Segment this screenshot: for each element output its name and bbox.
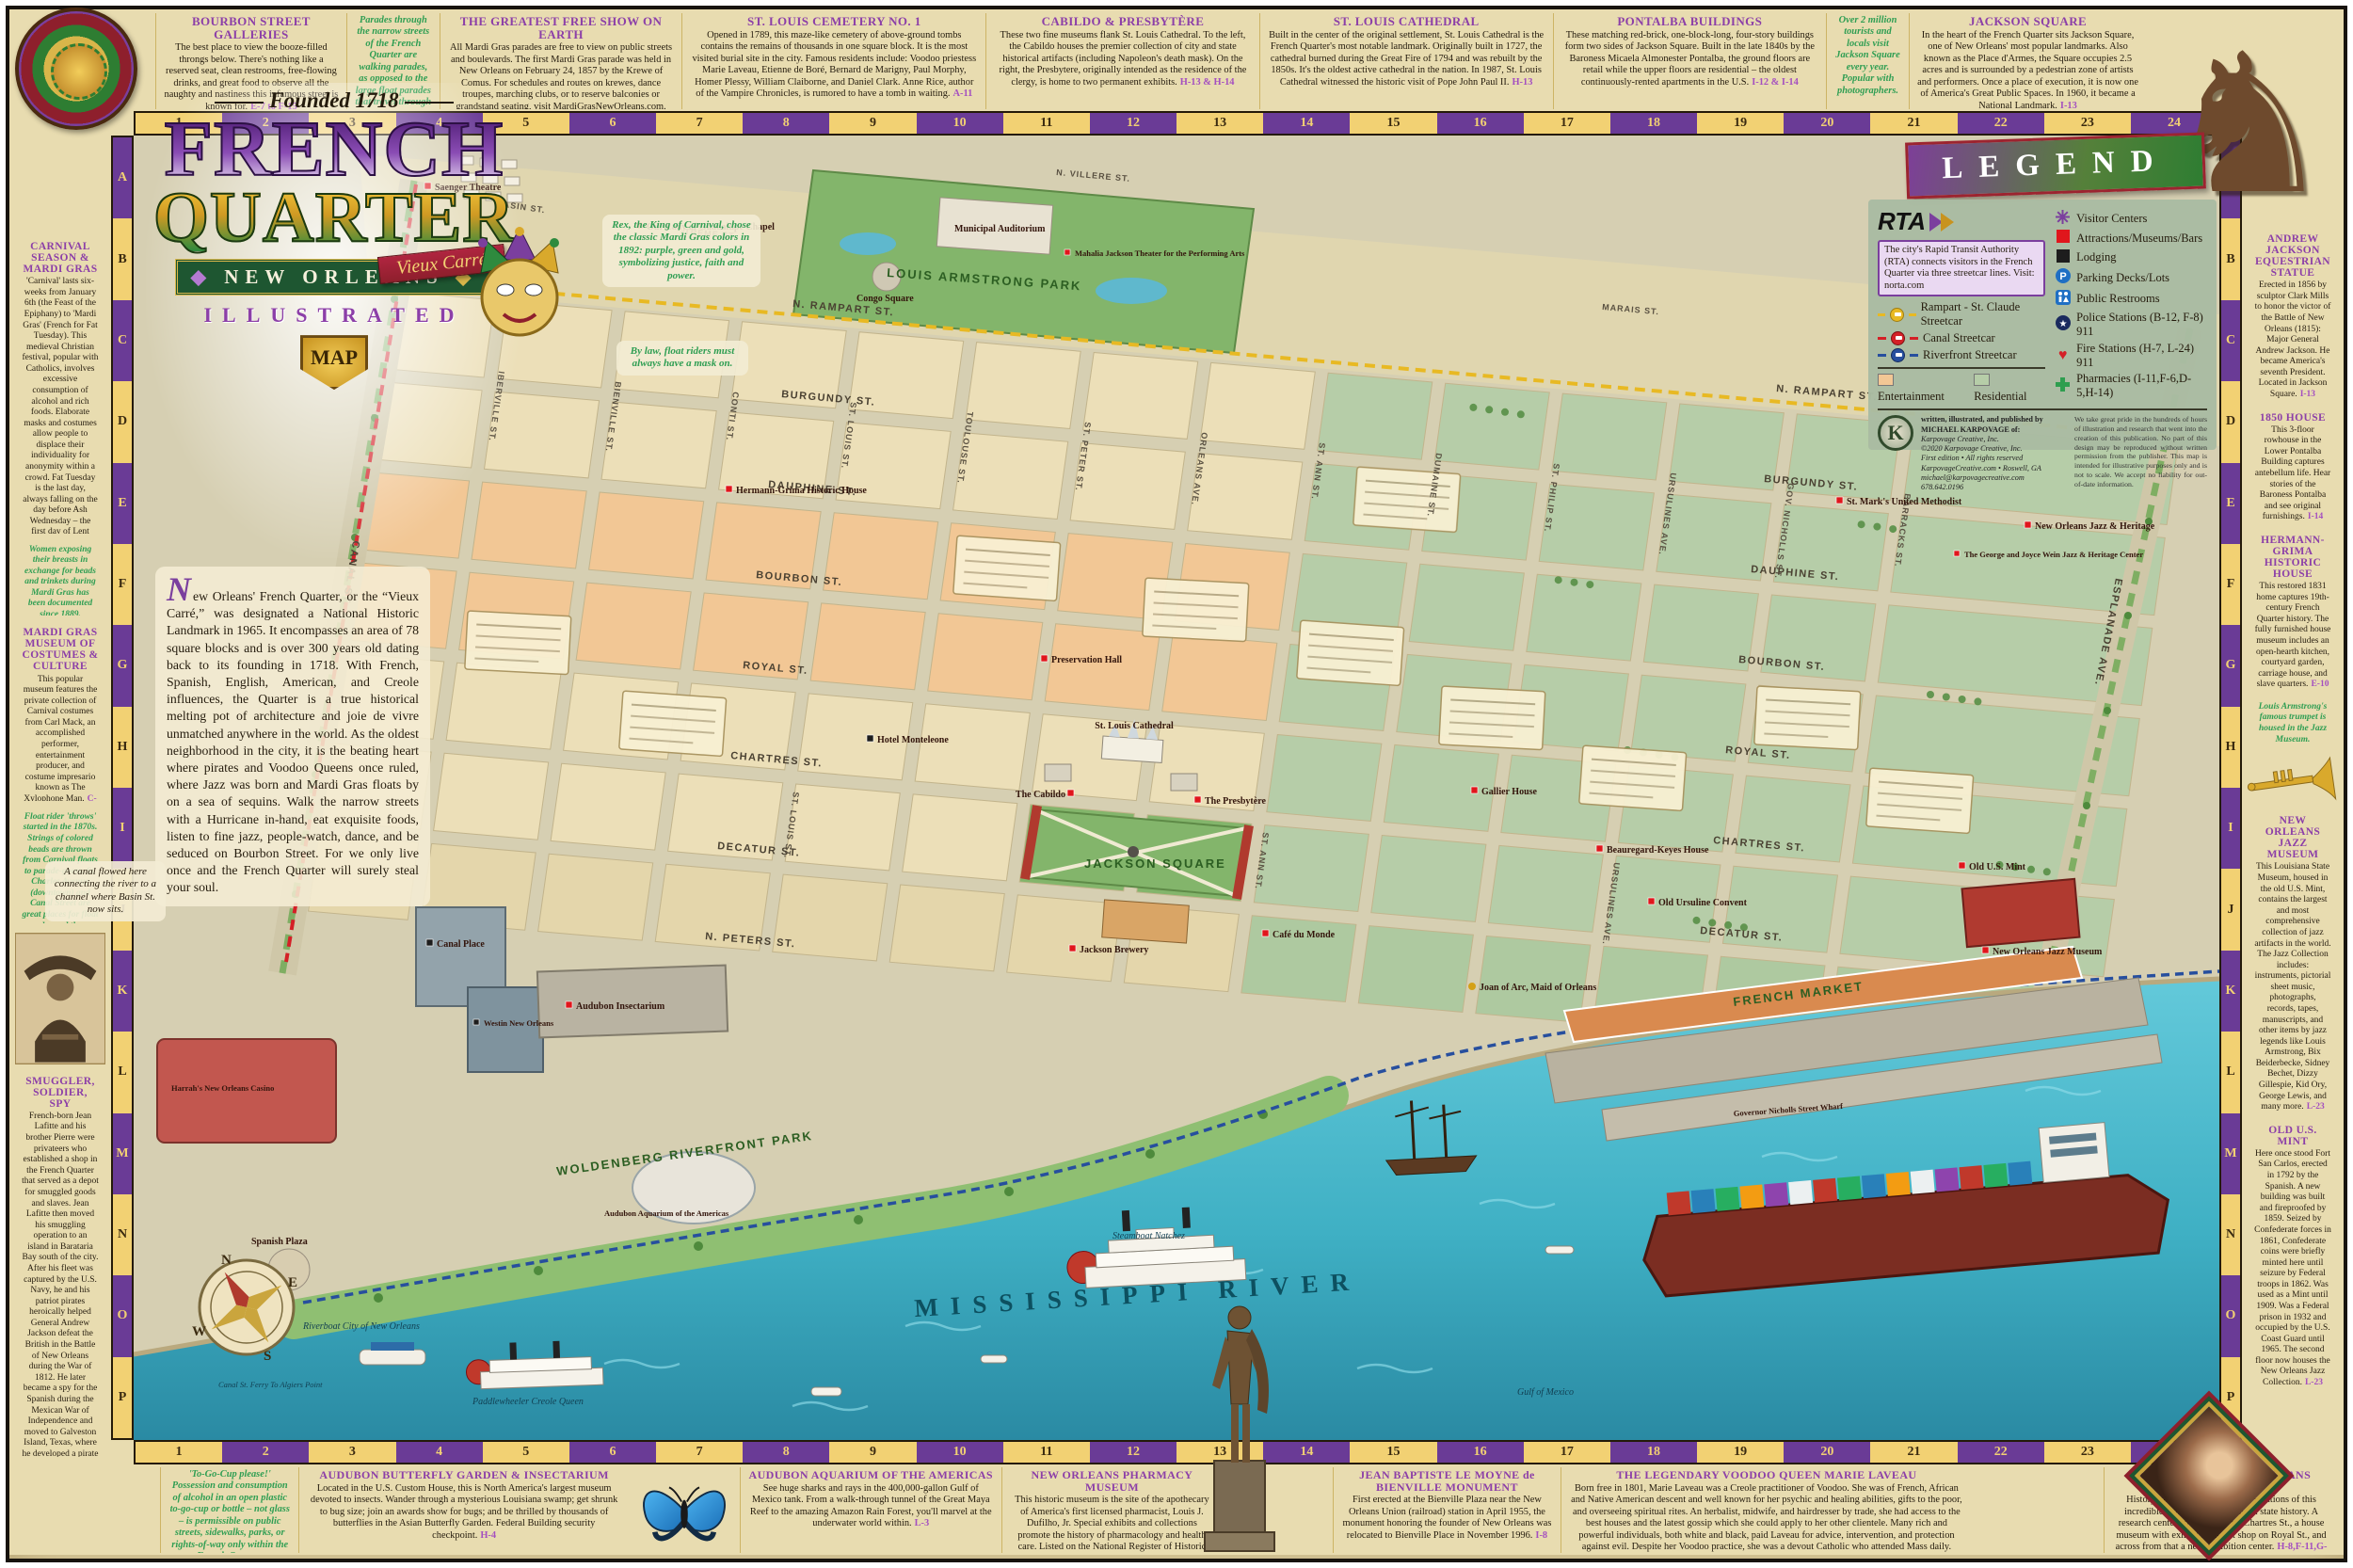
grid-cell: H	[113, 707, 132, 788]
block-body: First erected at the Bienville Plaza nea…	[1341, 1495, 1553, 1542]
grid-cell: M	[2221, 1113, 2240, 1194]
compass-e: E	[288, 1275, 297, 1290]
info-block: AUDUBON AQUARIUM OF THE AMERICAS See hug…	[740, 1467, 1001, 1553]
attraction-icon	[2055, 230, 2071, 247]
block-body: 'Carnival' lasts six-weeks from January …	[22, 277, 99, 533]
poi-beauregard-keyes-house: Beauregard-Keyes House	[1596, 845, 1709, 856]
grid-cell: 22	[1958, 113, 2044, 134]
grid-cell: 20	[1784, 1442, 1870, 1463]
block-body: Born free in 1801, Marie Laveau was a Cr…	[1569, 1483, 1964, 1553]
svg-text:Steamboat Natchez: Steamboat Natchez	[1112, 1231, 1185, 1241]
poi-creole-queen: Paddlewheeler Creole Queen	[472, 1397, 584, 1407]
svg-text:St. Louis Cathedral: St. Louis Cathedral	[1095, 721, 1174, 731]
block-body: This restored 1831 home captures 19th-ce…	[2254, 582, 2331, 691]
grid-ruler-left: ABCDEFGHIJKLMNOP	[111, 136, 134, 1440]
grid-cell: 21	[1870, 1442, 1957, 1463]
grid-cell: P	[113, 1357, 132, 1438]
svg-text:Spanish Plaza: Spanish Plaza	[251, 1237, 308, 1247]
grid-cell: K	[113, 951, 132, 1032]
block-body: Over 2 million tourists and locals visit…	[1834, 15, 1901, 97]
block-title: 1850 HOUSE	[2254, 412, 2331, 424]
rta-description: The city's Rapid Transit Authority (RTA)…	[1878, 240, 2045, 296]
block-title: JACKSON SQUARE	[1917, 15, 2138, 28]
legend-parking: PParking Decks/Lots	[2055, 268, 2207, 287]
lodging-icon	[2055, 249, 2071, 266]
fire-station-icon: ♥	[2055, 349, 2071, 362]
info-block: ST. LOUIS CATHEDRAL Built in the center …	[1259, 13, 1553, 109]
svg-text:P: P	[2059, 271, 2066, 282]
poi-jackson-brewery: Jackson Brewery	[1069, 945, 1148, 955]
legend-rampart-line: Rampart - St. Claude Streetcar	[1878, 300, 2045, 328]
credit-line: 678.642.0196	[1921, 483, 2067, 492]
butterfly-icon	[629, 1467, 740, 1553]
svg-text:Municipal Auditorium: Municipal Auditorium	[954, 224, 1046, 234]
grid-cell: 7	[656, 1442, 743, 1463]
poi-cafe-du-monde: Café du Monde	[1262, 930, 1336, 940]
poi-old-us-mint: Old U.S. Mint	[1959, 862, 2026, 872]
credit-line: ©2020 Karpovage Creative, Inc.	[1921, 444, 2067, 454]
svg-text:Audubon Aquarium of the Americ: Audubon Aquarium of the Americas	[604, 1208, 729, 1218]
legend-pharmacies: Pharmacies (I-11,F-6,D-5,H-14)	[2055, 372, 2207, 400]
grid-cell: J	[2221, 869, 2240, 950]
poi-cabildo: The Cabildo	[1016, 790, 1074, 800]
legend-banner: LEGEND	[1905, 132, 2206, 199]
grid-cell: F	[113, 544, 132, 625]
poi-congo-square: Congo Square	[856, 294, 914, 304]
svg-text:Old Ursuline Convent: Old Ursuline Convent	[1658, 898, 1748, 908]
block-body: This popular museum features the private…	[22, 675, 99, 801]
streetcar-icon-gold	[1890, 308, 1904, 322]
credit-line: First edition • All rights reserved	[1921, 454, 2067, 463]
info-block: THE LEGENDARY VOODOO QUEEN MARIE LAVEAU …	[1561, 1467, 1972, 1553]
poi-old-ursuline-convent: Old Ursuline Convent	[1648, 898, 1748, 908]
poi-preservation-hall: Preservation Hall	[1041, 655, 1122, 665]
grid-cell: 21	[1870, 113, 1957, 134]
title-french: FRENCH	[146, 113, 522, 185]
grid-cell: 4	[396, 1442, 483, 1463]
block-body: Louis Armstrong's famous trumpet is hous…	[2254, 702, 2331, 745]
legend-panel: RTA The city's Rapid Transit Authority (…	[1868, 200, 2217, 450]
legend-lodging: Lodging	[2055, 249, 2207, 266]
block-title: BOURBON STREET GALLERIES	[164, 15, 339, 40]
grid-cell: N	[113, 1194, 132, 1275]
grid-cell: D	[113, 381, 132, 462]
svg-text:Hermann-Grima Historic House: Hermann-Grima Historic House	[736, 486, 867, 496]
credit-line: KarpovageCreative.com • Roswell, GA	[1921, 464, 2067, 473]
svg-text:Riverboat City of New Orleans: Riverboat City of New Orleans	[302, 1321, 420, 1332]
grid-cell: 22	[1958, 1442, 2044, 1463]
grid-cell: M	[113, 1113, 132, 1194]
svg-text:The Cabildo: The Cabildo	[1016, 790, 1065, 800]
poi-steamboat-natchez: Steamboat Natchez	[1112, 1231, 1185, 1241]
svg-text:Congo Square: Congo Square	[856, 294, 914, 304]
legend-restrooms: Public Restrooms	[2055, 290, 2207, 309]
grid-cell: B	[113, 218, 132, 299]
grid-cell: 20	[1784, 113, 1870, 134]
info-block: 1850 HOUSE This 3-floor rowhouse in the …	[2247, 410, 2339, 525]
grid-cell: 23	[2044, 113, 2131, 134]
block-title: THE LEGENDARY VOODOO QUEEN MARIE LAVEAU	[1569, 1469, 1964, 1481]
grid-cell: K	[2221, 951, 2240, 1032]
block-title: NEW ORLEANS PHARMACY MUSEUM	[1010, 1469, 1214, 1493]
info-block: Over 2 million tourists and locals visit…	[1826, 13, 1909, 109]
grid-cell: 17	[1524, 1442, 1610, 1463]
svg-text:St. Mark's United Methodist: St. Mark's United Methodist	[1847, 497, 1962, 507]
block-body: This historic museum is the site of the …	[1010, 1495, 1214, 1553]
poi-aquarium: Audubon Aquarium of the Americas	[604, 1208, 729, 1218]
svg-text:Gulf of Mexico: Gulf of Mexico	[1517, 1387, 1574, 1398]
grid-cell: E	[2221, 463, 2240, 544]
poi-spanish-plaza: Spanish Plaza	[251, 1237, 308, 1247]
block-body: Located in the U.S. Custom House, this i…	[307, 1483, 620, 1542]
svg-text:Hotel Monteleone: Hotel Monteleone	[877, 735, 949, 745]
disclaimer: We take great pride in the hundreds of h…	[2074, 415, 2207, 488]
grid-cell: E	[113, 463, 132, 544]
svg-text:Café du Monde: Café du Monde	[1273, 930, 1336, 940]
grid-cell: 7	[656, 113, 743, 134]
block-title: SMUGGLER, SOLDIER, SPY	[22, 1076, 99, 1110]
grid-cell: C	[2221, 300, 2240, 381]
legend-fire: ♥Fire Stations (H-7, L-24) 911	[2055, 342, 2207, 370]
rex-note: Rex, the King of Carnival, chose the cla…	[602, 215, 760, 287]
svg-text:New Orleans Jazz Museum: New Orleans Jazz Museum	[1993, 947, 2103, 957]
map-shield: MAP	[300, 335, 368, 390]
intro-paragraph: New Orleans' French Quarter, or the “Vie…	[155, 567, 430, 906]
grid-cell: 12	[1090, 1442, 1176, 1463]
info-block: CABILDO & PRESBYTÈRE These two fine muse…	[985, 13, 1258, 109]
grid-cell: L	[113, 1032, 132, 1112]
svg-text:Canal Place: Canal Place	[437, 939, 485, 950]
poi-hermann-grima-house: Hermann-Grima Historic House	[726, 486, 867, 496]
grid-cell: 12	[1090, 113, 1176, 134]
info-block: SMUGGLER, SOLDIER, SPY French-born Jean …	[14, 1074, 106, 1457]
grid-cell: 14	[1263, 113, 1350, 134]
block-body: This 3-floor rowhouse in the Lower Ponta…	[2254, 425, 2331, 523]
compass-n: N	[221, 1253, 232, 1268]
trumpet-icon	[2247, 755, 2339, 806]
credit-line: written, illustrated, and published by	[1921, 415, 2067, 424]
svg-text:Jackson Brewery: Jackson Brewery	[1080, 945, 1148, 955]
info-block: HERMANN-GRIMA HISTORIC HOUSE This restor…	[2247, 533, 2339, 693]
poi-municipal-auditorium: Municipal Auditorium	[954, 224, 1046, 234]
restroom-icon	[2055, 290, 2071, 309]
publisher-credit: written, illustrated, and published byMI…	[1921, 415, 2067, 492]
canal-history-note: A canal flowed here connecting the river…	[45, 861, 166, 921]
svg-text:The George and Joyce Wein Jazz: The George and Joyce Wein Jazz & Heritag…	[1964, 550, 2143, 559]
grid-cell: O	[113, 1275, 132, 1356]
police-icon: ★	[2055, 315, 2071, 334]
svg-text:JACKSON SQUARE: JACKSON SQUARE	[1084, 856, 1226, 871]
block-title: MARDI GRAS MUSEUM OF COSTUMES & CULTURE	[22, 627, 99, 672]
karpovage-logo: K	[1878, 415, 1913, 451]
poi-joan-of-arc: Joan of Arc, Maid of Orleans	[1468, 983, 1596, 993]
info-block: NEW ORLEANS JAZZ MUSEUM This Louisiana S…	[2247, 813, 2339, 1115]
entertainment-swatch: Entertainment	[1878, 374, 1962, 404]
block-title: PONTALBA BUILDINGS	[1561, 15, 1818, 28]
legend-riverfront-line: Riverfront Streetcar	[1878, 348, 2045, 362]
svg-text:Beauregard-Keyes House: Beauregard-Keyes House	[1607, 845, 1709, 856]
block-body: See huge sharks and rays in the 400,000-…	[748, 1483, 994, 1530]
grid-cell: 10	[917, 113, 1003, 134]
svg-text:Mahalia Jackson Theater for th: Mahalia Jackson Theater for the Performi…	[1075, 248, 1245, 258]
info-block: JEAN BAPTISTE LE MOYNE de BIENVILLE MONU…	[1333, 1467, 1561, 1553]
grid-cell: 13	[1176, 113, 1263, 134]
poi-jazz-heritage: New Orleans Jazz & Heritage	[2025, 521, 2155, 532]
poi-gulf-of-mexico: Gulf of Mexico	[1517, 1387, 1574, 1398]
block-title: NEW ORLEANS JAZZ MUSEUM	[2254, 815, 2331, 860]
block-title: THE GREATEST FREE SHOW ON EARTH	[448, 15, 674, 40]
laveau-portrait-gap	[1972, 1467, 2104, 1553]
visitor-center-icon	[2055, 210, 2071, 228]
grid-cell: I	[2221, 788, 2240, 869]
block-body: This Louisiana State Museum, housed in t…	[2254, 862, 2331, 1112]
block-title: AUDUBON AQUARIUM OF THE AMERICAS	[748, 1469, 994, 1481]
poi-riverboat-city-of-new-orleans: Riverboat City of New Orleans	[302, 1321, 420, 1332]
jester-mask-icon	[468, 224, 571, 346]
grid-cell: D	[2221, 381, 2240, 462]
grid-cell: N	[2221, 1194, 2240, 1275]
svg-text:Westin New Orleans: Westin New Orleans	[484, 1018, 554, 1028]
info-block: Women exposing their breasts in exchange…	[14, 543, 106, 616]
grid-cell: I	[113, 788, 132, 869]
residential-swatch: Residential	[1974, 374, 2045, 404]
poi-hotel-monteleone: Hotel Monteleone	[867, 735, 949, 745]
credit-line: MICHAEL KARPOVAGE of:	[1921, 425, 2067, 435]
grid-cell: 15	[1350, 1442, 1436, 1463]
block-body: Women exposing their breasts in exchange…	[22, 545, 99, 616]
parking-icon: P	[2055, 268, 2071, 287]
poi-st-louis-cathedral: St. Louis Cathedral	[1095, 721, 1174, 731]
french-quarter-illustrated-map: N E S W N. RAMPART ST. BURGUNDY ST. DAUP…	[0, 0, 2353, 1568]
block-title: ST. LOUIS CEMETERY NO. 1	[690, 15, 978, 28]
block-body: These matching red-brick, one-block-long…	[1561, 30, 1818, 88]
info-block: 'To-Go-Cup please!' Possession and consu…	[160, 1467, 298, 1553]
info-block: MARDI GRAS MUSEUM OF COSTUMES & CULTURE …	[14, 625, 106, 801]
svg-text:Harrah's New Orleans Casino: Harrah's New Orleans Casino	[171, 1083, 274, 1093]
poi-mahalia-jackson-theater: Mahalia Jackson Theater for the Performi…	[1064, 248, 1245, 258]
grid-cell: 11	[1003, 113, 1090, 134]
poi-jazz-museum: New Orleans Jazz Museum	[1982, 947, 2103, 957]
grid-cell: 17	[1524, 113, 1610, 134]
poi-st-marks-methodist: St. Mark's United Methodist	[1836, 497, 1962, 507]
block-title: HERMANN-GRIMA HISTORIC HOUSE	[2254, 535, 2331, 580]
poi-presbytere: The Presbytère	[1194, 796, 1266, 807]
grid-cell: 9	[829, 1442, 916, 1463]
grid-cell: 5	[483, 1442, 569, 1463]
grid-cell: 6	[569, 113, 656, 134]
rta-logo: RTA	[1878, 207, 2045, 236]
illustrated-label: ILLUSTRATED	[146, 303, 522, 328]
credit-line: Karpovage Creative, Inc.	[1921, 435, 2067, 444]
grid-cell: 2	[222, 1442, 309, 1463]
svg-text:Joan of Arc, Maid of Orleans: Joan of Arc, Maid of Orleans	[1480, 983, 1596, 993]
grid-cell: H	[2221, 707, 2240, 788]
block-title: JEAN BAPTISTE LE MOYNE de BIENVILLE MONU…	[1341, 1469, 1553, 1493]
block-body: French-born Jean Lafitte and his brother…	[22, 1112, 99, 1457]
grid-cell: L	[2221, 1032, 2240, 1112]
mardi-gras-medallion	[15, 8, 137, 130]
grid-cell: 16	[1437, 113, 1524, 134]
legend-visitor-centers: Visitor Centers	[2055, 210, 2207, 228]
title-block: Founded 1718 FRENCH QUARTER Vieux Carré …	[146, 83, 522, 558]
poi-algiers-ferry: Canal St. Ferry To Algiers Point	[218, 1380, 323, 1389]
svg-text:Gallier House: Gallier House	[1481, 787, 1538, 797]
compass-s: S	[264, 1349, 271, 1364]
bienville-statue	[1188, 1263, 1291, 1555]
grid-cell: 8	[743, 1442, 829, 1463]
grid-cell: 16	[1437, 1442, 1524, 1463]
right-border: ANDREW JACKSON EQUESTRIAN STATUE Erected…	[2242, 111, 2344, 1464]
pirate-portrait	[14, 933, 106, 1064]
svg-text:Canal St. Ferry To Algiers Poi: Canal St. Ferry To Algiers Point	[218, 1380, 323, 1389]
info-block: JACKSON SQUARE In the heart of the Frenc…	[1909, 13, 2146, 109]
credit-line: michael@karpovagecreative.com	[1921, 473, 2067, 483]
compass-w: W	[192, 1324, 206, 1339]
grid-cell: 19	[1697, 1442, 1784, 1463]
block-title: CABILDO & PRESBYTÈRE	[994, 15, 1251, 28]
grid-cell: 23	[2044, 1442, 2131, 1463]
bottom-border: 'To-Go-Cup please!' Possession and consu…	[9, 1464, 2344, 1555]
info-block: AUDUBON BUTTERFLY GARDEN & INSECTARIUM L…	[298, 1467, 628, 1553]
grid-cell: 18	[1610, 1442, 1697, 1463]
left-border: CARNIVAL SEASON & MARDI GRAS 'Carnival' …	[9, 111, 111, 1464]
block-body: In the heart of the French Quarter sits …	[1917, 30, 2138, 109]
block-body: Here once stood Fort San Carlos, erected…	[2254, 1149, 2331, 1389]
block-body: Opened in 1789, this maze-like cemetery …	[690, 30, 978, 101]
block-title: ST. LOUIS CATHEDRAL	[1268, 15, 1545, 28]
block-body: These two fine museums flank St. Louis C…	[994, 30, 1251, 88]
grid-cell: 9	[829, 113, 916, 134]
mask-note: By law, float riders must always have a …	[616, 341, 748, 376]
poi-george-joyce-wein-center: The George and Joyce Wein Jazz & Heritag…	[1954, 550, 2143, 559]
grid-cell: 10	[917, 1442, 1003, 1463]
grid-cell: C	[113, 300, 132, 381]
grid-cell: 3	[309, 1442, 395, 1463]
svg-text:Audubon Insectarium: Audubon Insectarium	[576, 1001, 665, 1012]
grid-cell: G	[2221, 625, 2240, 706]
pharmacy-icon	[2055, 377, 2071, 395]
grid-cell: 15	[1350, 113, 1436, 134]
grid-cell: 18	[1610, 113, 1697, 134]
grid-cell: 1	[136, 1442, 222, 1463]
poi-audubon-insectarium: Audubon Insectarium	[566, 1001, 665, 1012]
block-body: 'To-Go-Cup please!' Possession and consu…	[168, 1469, 291, 1553]
block-title: AUDUBON BUTTERFLY GARDEN & INSECTARIUM	[307, 1469, 620, 1481]
info-block: PONTALBA BUILDINGS These matching red-br…	[1553, 13, 1826, 109]
grid-cell: 19	[1697, 113, 1784, 134]
svg-text:Paddlewheeler Creole Queen: Paddlewheeler Creole Queen	[472, 1397, 584, 1407]
grid-cell: 8	[743, 113, 829, 134]
poi-westin: Westin New Orleans	[473, 1018, 554, 1028]
svg-text:★: ★	[2058, 319, 2067, 329]
legend-canal-line: Canal Streetcar	[1878, 331, 2045, 345]
grid-cell: 11	[1003, 1442, 1090, 1463]
grid-ruler-right: ABCDEFGHIJKLMNOP	[2219, 136, 2242, 1440]
grid-cell: G	[113, 625, 132, 706]
svg-text:Preservation Hall: Preservation Hall	[1051, 655, 1122, 665]
streetcar-icon-red	[1891, 331, 1905, 345]
info-block: CARNIVAL SEASON & MARDI GRAS 'Carnival' …	[14, 239, 106, 534]
block-body: Erected in 1856 by sculptor Clark Mills …	[2254, 280, 2331, 400]
info-block: ST. LOUIS CEMETERY NO. 1 Opened in 1789,…	[681, 13, 985, 109]
info-block: Louis Armstrong's famous trumpet is hous…	[2247, 700, 2339, 747]
legend-attractions: Attractions/Museums/Bars	[2055, 230, 2207, 247]
info-block: OLD U.S. MINT Here once stood Fort San C…	[2247, 1123, 2339, 1391]
block-body: Built in the center of the original sett…	[1268, 30, 1545, 88]
grid-cell: O	[2221, 1275, 2240, 1356]
poi-gallier-house: Gallier House	[1471, 787, 1538, 797]
svg-text:The Presbytère: The Presbytère	[1205, 796, 1266, 807]
grid-ruler-bottom: 123456789101112131415161718192021222324	[134, 1440, 2219, 1464]
svg-text:Old U.S. Mint: Old U.S. Mint	[1969, 862, 2026, 872]
legend-police: ★Police Stations (B-12, F-8) 911	[2055, 311, 2207, 339]
grid-cell: A	[113, 137, 132, 218]
title-quarter: QUARTER	[146, 185, 522, 251]
marie-laveau-portrait	[2138, 1397, 2280, 1555]
block-title: CARNIVAL SEASON & MARDI GRAS	[22, 241, 99, 275]
streetcar-icon-blue	[1891, 348, 1905, 362]
poi-harrahs-casino: Harrah's New Orleans Casino	[171, 1083, 274, 1093]
svg-text:New Orleans Jazz & Heritage: New Orleans Jazz & Heritage	[2035, 521, 2155, 532]
grid-cell: F	[2221, 544, 2240, 625]
grid-cell: 6	[569, 1442, 656, 1463]
block-title: OLD U.S. MINT	[2254, 1125, 2331, 1147]
